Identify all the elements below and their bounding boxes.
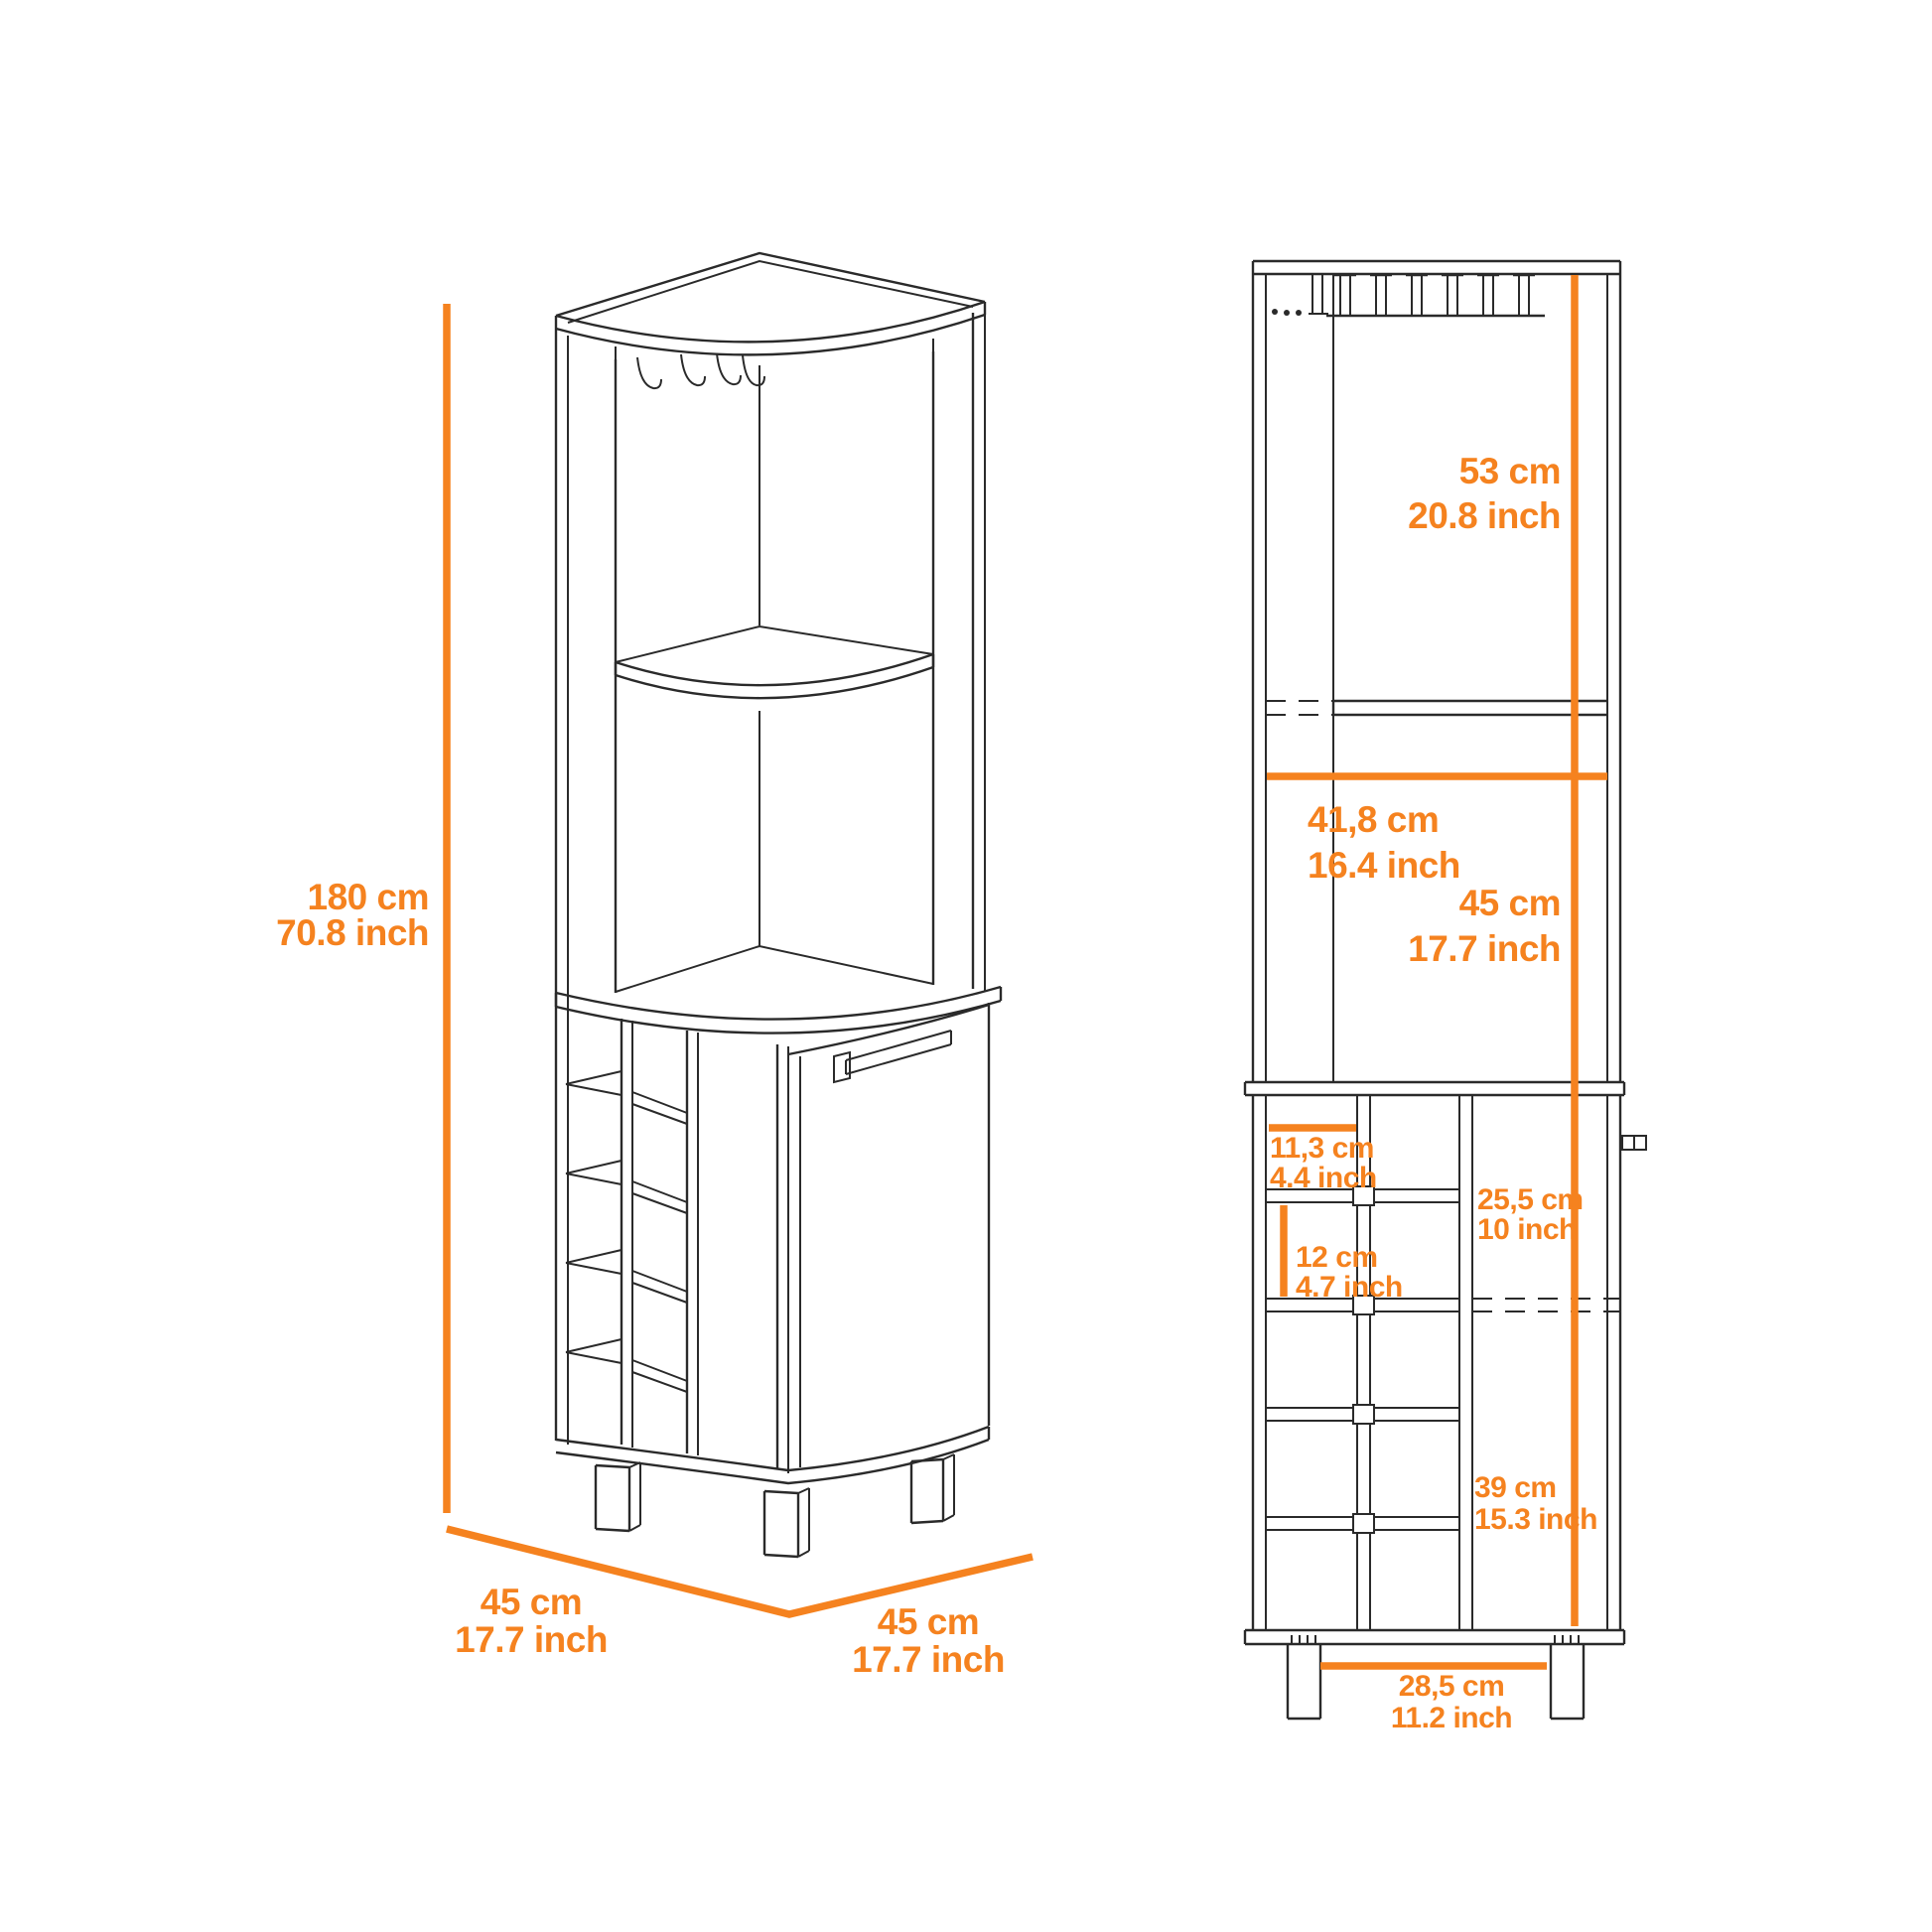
front-view-linework [1245,261,1646,1719]
bottle-slot-height-label-cm: 12 cm [1296,1241,1378,1274]
stemware-hooks-icon [637,353,764,388]
front-plinth [1245,1630,1624,1644]
bottle-slot-width-label-inch: 4.4 inch [1270,1162,1377,1194]
cabinet-door [777,1003,989,1473]
legs [596,1454,954,1557]
width-label-inch: 17.7 inch [852,1639,1005,1680]
door-width-label-cm: 25,5 cm [1477,1183,1584,1216]
middle-section-height-label-cm: 45 cm [1459,883,1561,923]
lower-section-height-label-cm: 39 cm [1474,1471,1557,1504]
depth-label-cm: 45 cm [481,1582,582,1622]
perspective-view-dimension-labels: 180 cm 70.8 inch 45 cm 17.7 inch 45 cm 1… [276,877,1005,1680]
depth-label-inch: 17.7 inch [455,1619,608,1660]
middle-shelf [616,626,933,698]
height-label-inch: 70.8 inch [276,912,429,953]
bottle-slot-height-label-inch: 4.7 inch [1296,1271,1403,1304]
top-panel [556,253,985,359]
leg-spacing-label-cm: 28,5 cm [1399,1670,1505,1703]
front-door-handle-icon [1622,1136,1646,1150]
interior-width-label-cm: 41,8 cm [1308,799,1439,840]
perspective-view-dimension-lines [447,304,1033,1614]
door-handle-icon [834,1031,951,1082]
top-section-height-label-cm: 53 cm [1459,451,1561,491]
height-label-cm: 180 cm [308,877,430,917]
width-label-cm: 45 cm [878,1601,979,1642]
glass-rack-icon [1272,275,1545,316]
front-middle-shelf [1266,701,1607,715]
middle-section-height-label-inch: 17.7 inch [1408,928,1561,969]
interior-width-label-inch: 16.4 inch [1308,845,1460,886]
top-section-height-label-inch: 20.8 inch [1408,495,1561,536]
leg-spacing-label-inch: 11.2 inch [1391,1702,1512,1734]
wine-cubbies [566,1019,698,1455]
diagram-page: 180 cm 70.8 inch 45 cm 17.7 inch 45 cm 1… [0,0,1932,1932]
bottle-slot-width-label-cm: 11,3 cm [1270,1132,1374,1165]
lower-section-height-label-inch: 15.3 inch [1474,1503,1597,1536]
front-counter-band [1245,1082,1624,1095]
front-view-dimension-labels: 53 cm 20.8 inch 41,8 cm 16.4 inch 45 cm … [1270,451,1597,1734]
dimension-diagram: 180 cm 70.8 inch 45 cm 17.7 inch 45 cm 1… [0,0,1932,1932]
door-width-label-inch: 10 inch [1477,1213,1577,1246]
perspective-view-linework [556,253,1001,1557]
